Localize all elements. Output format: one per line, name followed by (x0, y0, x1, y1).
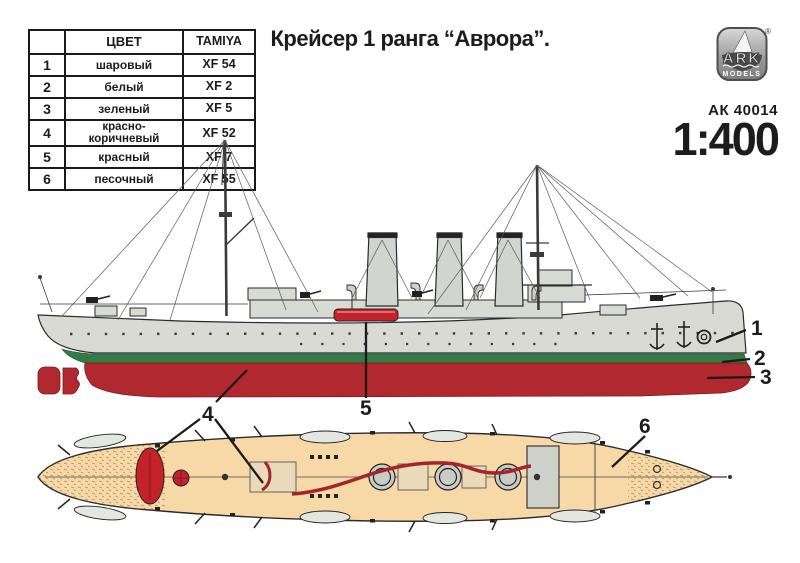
ship-drawing: 1 2 3 4 5 6 (0, 0, 800, 563)
propeller (63, 368, 80, 394)
funnel-2 (435, 233, 463, 306)
mizzen-mast (225, 140, 227, 316)
plan-fore-mast (534, 474, 540, 480)
bow-pole-ball (728, 475, 732, 479)
svg-text:1: 1 (751, 317, 763, 340)
fore-mast (537, 165, 539, 310)
instruction-sheet: { "title": "Крейсер 1 ранга “Аврора”.", … (0, 0, 800, 563)
rudder (38, 367, 60, 394)
funnel-3 (495, 233, 523, 306)
svg-text:6: 6 (639, 415, 651, 438)
funnel-1 (366, 233, 398, 306)
svg-text:5: 5 (360, 397, 372, 420)
svg-text:4: 4 (202, 403, 214, 426)
stern-flagstaff (40, 278, 52, 312)
funnels (366, 233, 523, 306)
red-underwater-hull (85, 363, 751, 397)
side-profile-view (38, 140, 751, 397)
red-launch-boat (334, 309, 398, 321)
plan-bridge (527, 446, 559, 508)
deck-plan-view (38, 422, 732, 532)
plan-mizzen-mast (222, 474, 228, 480)
svg-text:3: 3 (760, 366, 772, 389)
